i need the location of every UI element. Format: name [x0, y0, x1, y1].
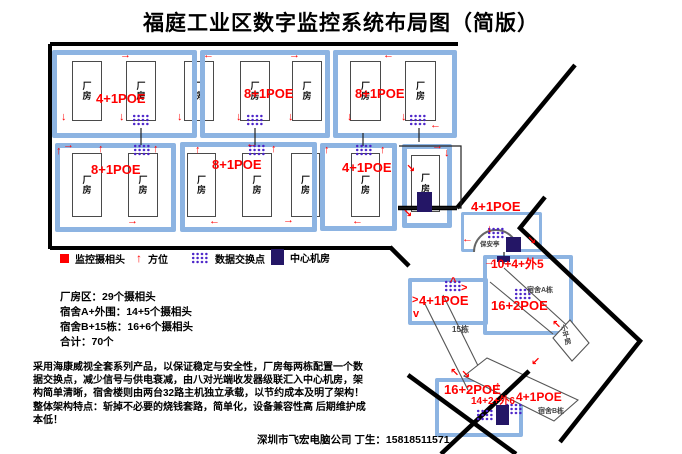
legend-item-label: 方位 [148, 251, 168, 266]
direction-arrow-icon: → [283, 215, 294, 226]
direction-arrow-icon: ↓ [61, 112, 67, 123]
legend-switch-icon [191, 252, 209, 264]
legend-item-label: 监控摄相头 [75, 251, 125, 266]
direction-arrow-icon: ← [462, 234, 473, 245]
direction-arrow-icon: ← [352, 216, 363, 227]
direction-arrow-icon: ↓ [177, 112, 183, 123]
page-title: 福庭工业区数字监控系统布局图（简版） [0, 7, 682, 37]
stats-line: 厂房区：29个摄相头 [60, 290, 193, 305]
direction-arrow-icon: ← [203, 50, 214, 61]
direction-arrow-icon: ← [209, 216, 220, 227]
poe-label: 8+1POE [244, 87, 294, 100]
direction-arrow-icon: → [127, 216, 138, 227]
poe-label: 4+1POE [419, 294, 469, 307]
data-switch-cluster-icon [409, 114, 427, 126]
direction-arrow-icon: ↑ [324, 145, 330, 156]
machine-room-icon [496, 405, 509, 425]
direction-arrow-icon: ↑ [380, 145, 386, 156]
poe-label: 8+1POE [91, 163, 141, 176]
company-footer: 深圳市飞宏电脑公司 丁生：15818511571 [257, 432, 450, 447]
direction-arrow-icon: ↘ [461, 370, 470, 381]
direction-arrow-icon: ↑ [153, 144, 159, 155]
poe-label: 10+4+外5 [491, 258, 544, 270]
direction-arrow-icon: ↑ [195, 145, 201, 156]
direction-arrow-icon: ↓ [487, 224, 493, 235]
data-switch-cluster-icon [132, 114, 150, 126]
machine-room-icon [506, 237, 521, 252]
direction-arrow-icon: ← [430, 120, 441, 131]
direction-arrow-icon: ↘ [527, 236, 536, 247]
poe-label: 16+2POE [444, 383, 501, 396]
direction-arrow-icon: ↘ [406, 164, 415, 175]
direction-arrow-icon: ↙ [531, 357, 540, 368]
direction-arrow-icon: ^ [450, 277, 456, 288]
poe-label: 8+1POE [355, 87, 405, 100]
direction-arrow-icon: ← [246, 139, 257, 150]
data-switch-cluster-icon [355, 144, 373, 156]
stats-line: 宿舍A+外围：14+5个摄相头 [60, 305, 193, 320]
zone-box [55, 143, 176, 232]
legend-item-label: 中心机房 [290, 250, 330, 265]
legend-direction-icon: ↑ [136, 252, 142, 264]
stats-line: 合计：70个 [60, 335, 193, 350]
poe-label: 4+1POE [471, 200, 521, 213]
data-switch-cluster-icon [476, 409, 494, 421]
direction-arrow-icon: → [432, 141, 443, 152]
description-paragraph: 采用海康威视全套系列产品，以保证稳定与安全性，厂房每两栋配置一个数据交换点，减少… [33, 361, 371, 427]
direction-arrow-icon: ← [383, 50, 394, 61]
legend-camera-icon [60, 254, 69, 263]
legend-machine-room-icon [271, 249, 284, 265]
area-label: 15栋 [452, 326, 469, 334]
camera-stats: 厂房区：29个摄相头宿舍A+外围：14+5个摄相头宿舍B+15栋：16+6个摄相… [60, 290, 193, 350]
poe-label: 16+2POE [491, 299, 548, 312]
layout-canvas: 福庭工业区数字监控系统布局图（简版） 厂房区：29个摄相头宿舍A+外围：14+5… [0, 0, 682, 454]
direction-arrow-icon: → [289, 50, 300, 61]
area-label: 宿舍B栋 [538, 408, 564, 415]
machine-room-icon [417, 192, 432, 212]
direction-arrow-icon: ↓ [401, 112, 407, 123]
area-label: 保安亭 [480, 242, 500, 249]
poe-label: 4+1POE [516, 391, 562, 403]
direction-arrow-icon: ↓ [444, 148, 450, 159]
direction-arrow-icon: → [120, 50, 131, 61]
poe-label: 8+1POE [212, 158, 262, 171]
data-switch-cluster-icon [133, 144, 151, 156]
area-label: 宿舍A栋 [527, 287, 553, 294]
legend-item: 中心机房 [271, 248, 330, 266]
direction-arrow-icon: ↑ [56, 146, 62, 157]
legend-item-label: 数据交换点 [215, 251, 265, 266]
direction-arrow-icon: ↑ [271, 144, 277, 155]
direction-arrow-icon: > [412, 295, 418, 306]
data-switch-cluster-icon [246, 114, 264, 126]
legend-item: 数据交换点 [191, 249, 265, 267]
stats-line: 宿舍B+15栋：16+6个摄相头 [60, 320, 193, 335]
direction-arrow-icon: ↘ [403, 209, 412, 220]
legend-item: 监控摄相头 [60, 249, 125, 267]
direction-arrow-icon: ↖ [450, 368, 459, 379]
legend-item: ↑方位 [136, 249, 168, 267]
direction-arrow-icon: ↓ [347, 112, 353, 123]
direction-arrow-icon: ↓ [119, 112, 125, 123]
direction-arrow-icon: ↓ [288, 112, 294, 123]
direction-arrow-icon: ↓ [236, 112, 242, 123]
poe-label: 4+1POE [96, 92, 146, 105]
direction-arrow-icon: ↑ [98, 144, 104, 155]
direction-arrow-icon: v [413, 309, 419, 320]
poe-label: 4+1POE [342, 161, 392, 174]
poe-label: 14+2+外6 [471, 397, 515, 407]
direction-arrow-icon: → [63, 140, 74, 151]
